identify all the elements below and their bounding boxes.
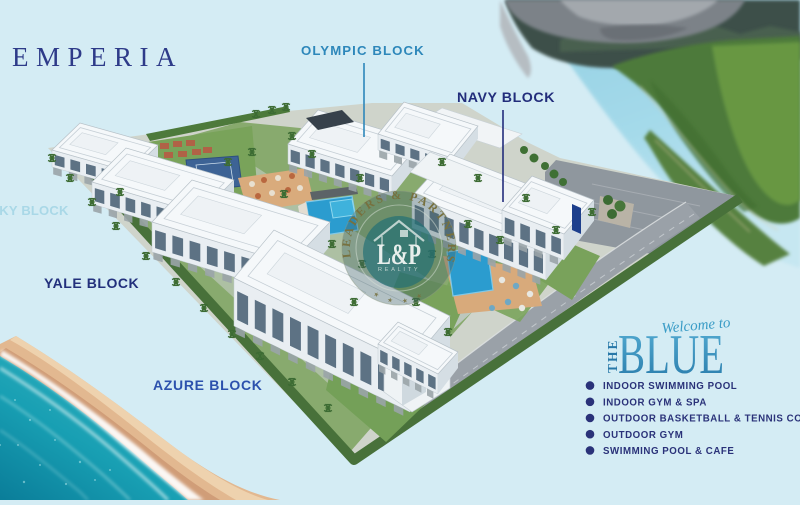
svg-text:OUTDOOR BASKETBALL & TENNIS CO: OUTDOOR BASKETBALL & TENNIS COURT: [603, 414, 800, 425]
svg-text:OLYMPIC BLOCK: OLYMPIC BLOCK: [301, 43, 425, 58]
svg-text:AZURE BLOCK: AZURE BLOCK: [153, 377, 263, 393]
svg-text:SWIMMING POOL & CAFE: SWIMMING POOL & CAFE: [603, 446, 734, 457]
svg-text:OUTDOOR GYM: OUTDOOR GYM: [603, 430, 683, 441]
svg-text:EMPERIA: EMPERIA: [12, 42, 183, 72]
svg-text:NAVY BLOCK: NAVY BLOCK: [457, 90, 555, 106]
svg-text:YALE BLOCK: YALE BLOCK: [44, 275, 139, 291]
svg-text:REALITY: REALITY: [378, 267, 420, 273]
svg-text:INDOOR GYM & SPA: INDOOR GYM & SPA: [603, 397, 707, 408]
svg-text:BLUE: BLUE: [618, 324, 724, 386]
svg-text:SKY BLOCK: SKY BLOCK: [0, 203, 69, 218]
svg-text:INDOOR SWIMMING POOL: INDOOR SWIMMING POOL: [603, 381, 737, 392]
